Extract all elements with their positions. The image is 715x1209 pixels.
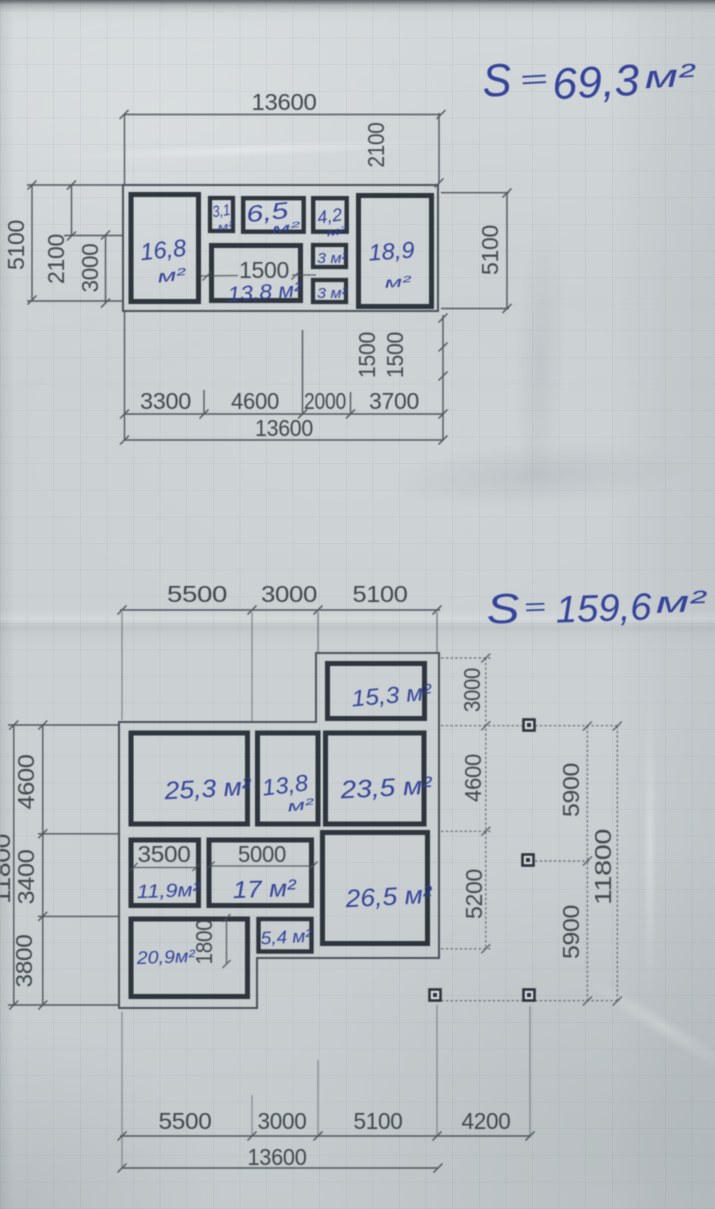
svg-text:5,4 м²: 5,4 м² (260, 926, 313, 949)
svg-text:S: S (481, 53, 513, 106)
svg-text:м²: м² (655, 585, 708, 620)
svg-text:м²: м² (157, 264, 189, 286)
svg-text:20,9м²: 20,9м² (135, 946, 196, 968)
svg-text:5000: 5000 (238, 841, 286, 867)
svg-text:4600: 4600 (460, 754, 486, 802)
svg-text:2100: 2100 (363, 123, 389, 168)
svg-text:4600: 4600 (231, 388, 279, 414)
svg-text:17 м²: 17 м² (232, 875, 297, 904)
svg-text:3000: 3000 (261, 581, 317, 607)
svg-text:5200: 5200 (461, 869, 487, 919)
svg-text:3 м²: 3 м² (317, 285, 348, 302)
svg-text:11800: 11800 (590, 829, 616, 905)
svg-text:13600: 13600 (248, 1144, 307, 1170)
svg-text:4200: 4200 (462, 1108, 511, 1134)
svg-text:5100: 5100 (477, 225, 503, 275)
svg-text:159,6: 159,6 (555, 586, 653, 631)
svg-text:4,2: 4,2 (316, 204, 344, 227)
svg-text:2100: 2100 (43, 234, 69, 284)
svg-text:5100: 5100 (353, 581, 408, 607)
svg-text:23,5 м²: 23,5 м² (339, 772, 434, 805)
svg-text:м²: м² (287, 795, 317, 815)
svg-text:5100: 5100 (3, 220, 29, 270)
svg-text:=: = (523, 594, 546, 622)
svg-text:3300: 3300 (140, 388, 191, 414)
svg-text:3 м²: 3 м² (317, 250, 348, 267)
svg-text:5500: 5500 (167, 581, 227, 607)
svg-text:5900: 5900 (558, 905, 584, 959)
svg-text:3000: 3000 (77, 244, 103, 293)
svg-text:3000: 3000 (258, 1108, 307, 1134)
svg-text:11,9м²: 11,9м² (136, 880, 200, 903)
svg-text:м²: м² (643, 57, 697, 96)
svg-text:15,3 м²: 15,3 м² (350, 678, 433, 711)
svg-text:=: = (519, 63, 549, 94)
svg-text:25,3 м²: 25,3 м² (163, 773, 253, 806)
svg-text:18,9: 18,9 (368, 236, 416, 265)
svg-text:м²: м² (217, 220, 235, 234)
svg-text:1800: 1800 (191, 920, 217, 965)
svg-text:4600: 4600 (13, 755, 39, 810)
svg-text:м²: м² (326, 225, 348, 240)
svg-text:м²: м² (384, 273, 413, 292)
svg-text:1500: 1500 (382, 332, 408, 378)
svg-text:3700: 3700 (369, 388, 419, 414)
svg-text:5900: 5900 (558, 763, 584, 817)
svg-text:3400: 3400 (13, 850, 39, 905)
svg-text:13600: 13600 (255, 415, 313, 441)
svg-text:16,8: 16,8 (139, 235, 188, 267)
svg-text:1500: 1500 (354, 332, 380, 378)
svg-text:5500: 5500 (159, 1108, 212, 1134)
svg-text:2000: 2000 (304, 388, 346, 414)
svg-text:м²: м² (271, 218, 302, 236)
svg-text:26,5 м²: 26,5 м² (344, 881, 434, 914)
svg-text:3,1: 3,1 (211, 202, 231, 221)
svg-text:5100: 5100 (354, 1108, 403, 1134)
svg-text:3800: 3800 (11, 935, 37, 988)
svg-text:13600: 13600 (252, 89, 317, 115)
svg-text:S: S (486, 584, 521, 632)
svg-text:69,3: 69,3 (551, 56, 641, 110)
svg-text:3500: 3500 (138, 841, 191, 867)
svg-text:3000: 3000 (459, 668, 485, 712)
